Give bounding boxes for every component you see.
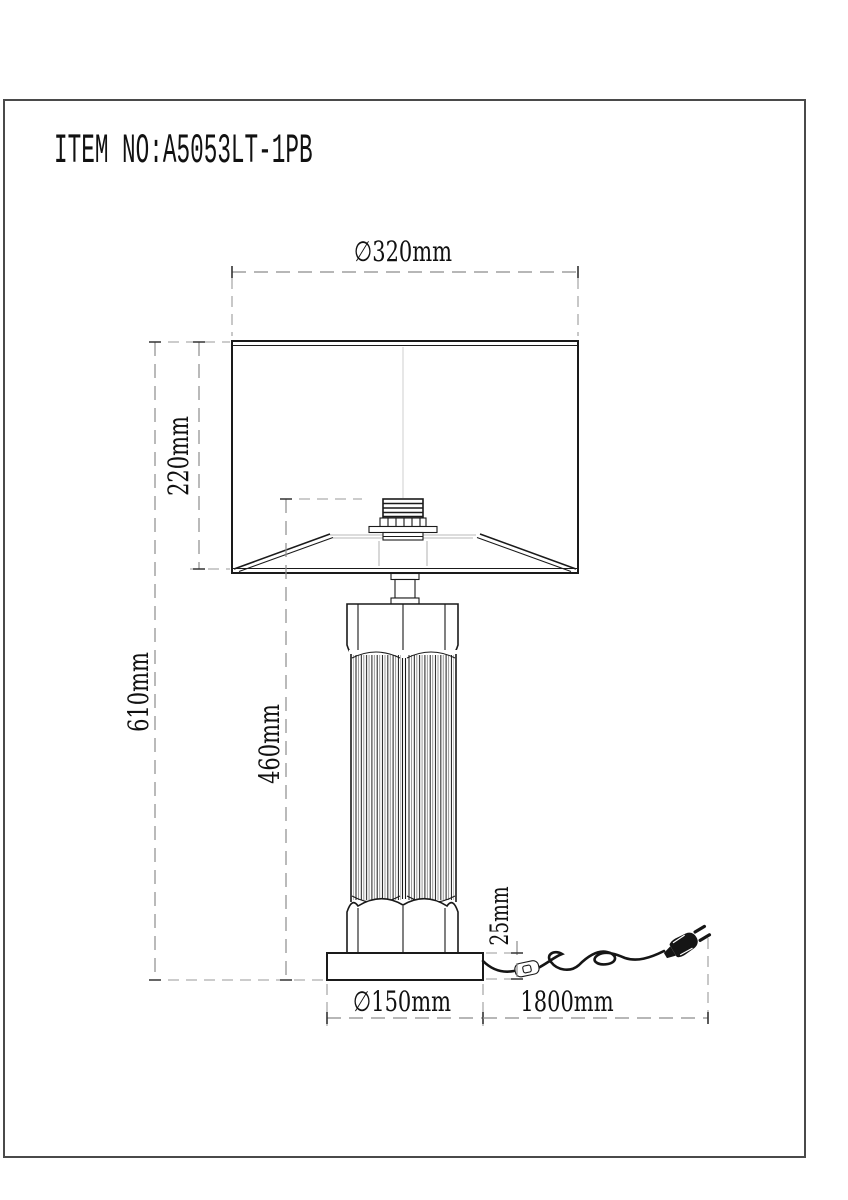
svg-text:25mm: 25mm [485, 886, 514, 945]
lamp-base [327, 953, 483, 980]
cord-knot [538, 951, 664, 970]
inline-switch [514, 960, 540, 978]
item-number-label: ITEM NO:A5053LT-1PB [54, 128, 313, 175]
right-column-flutes [407, 655, 454, 900]
lamp-technical-drawing: ITEM NO:A5053LT-1PB [0, 0, 848, 1200]
fluted-columns [349, 650, 458, 903]
svg-text:460mm: 460mm [253, 704, 286, 784]
svg-text:220mm: 220mm [162, 416, 195, 496]
dim-shade-height: 220mm [150, 342, 230, 569]
power-plug [661, 922, 714, 964]
plug-pin [698, 933, 712, 943]
lamp-drawing [232, 341, 713, 980]
svg-text:610mm: 610mm [122, 652, 155, 732]
svg-text:∅320mm: ∅320mm [354, 235, 452, 268]
socket-collar [380, 518, 426, 527]
technical-drawing-page: ITEM NO:A5053LT-1PB [0, 0, 848, 1200]
dim-base-diameter: ∅150mm [327, 984, 483, 1026]
svg-text:∅150mm: ∅150mm [353, 985, 451, 1018]
left-column-flutes [353, 655, 401, 900]
svg-text:1800mm: 1800mm [520, 985, 613, 1018]
cord-segment [483, 961, 514, 972]
body-bottom-cap [347, 899, 458, 953]
plug-pin [693, 924, 707, 934]
lamp-stem [391, 574, 419, 605]
socket-flange [369, 527, 437, 533]
dim-shade-diameter: ∅320mm [232, 235, 578, 336]
